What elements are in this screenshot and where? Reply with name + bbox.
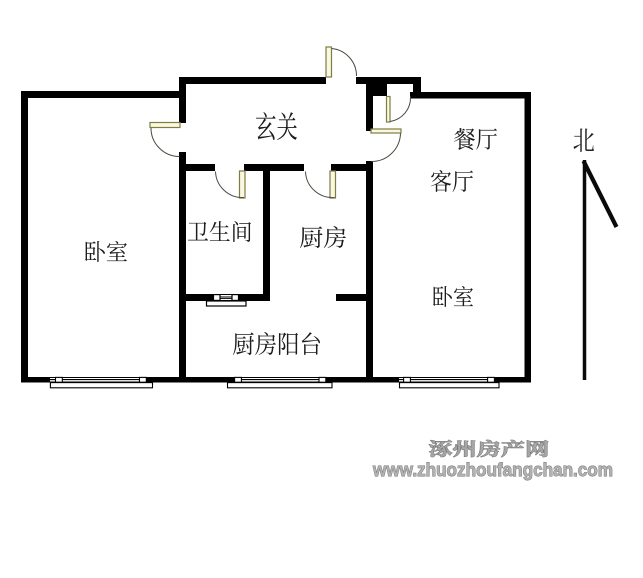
svg-text:www.zhuozhoufangchan.com: www.zhuozhoufangchan.com [372, 459, 613, 480]
